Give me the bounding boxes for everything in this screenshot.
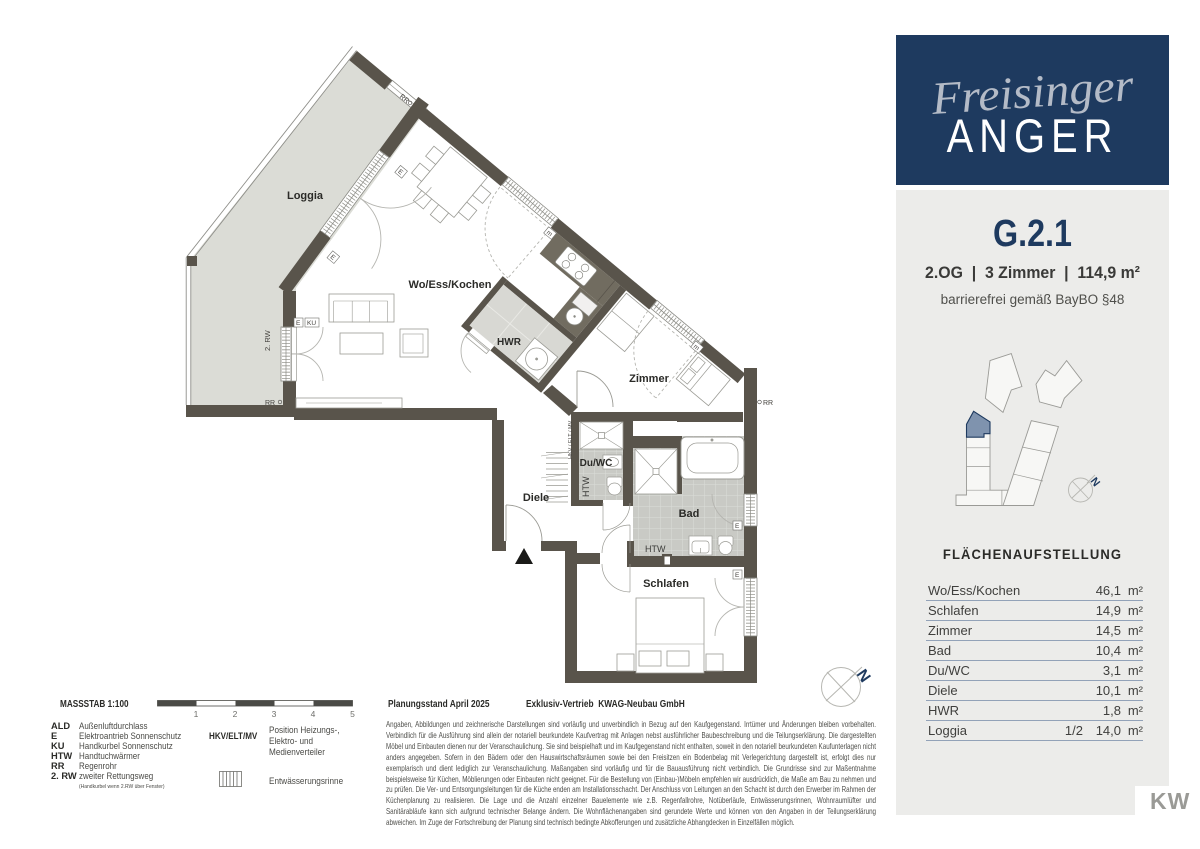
svg-text:Loggia: Loggia [287,190,324,202]
svg-text:2. RW: 2. RW [263,329,272,351]
svg-text:N: N [853,667,874,686]
svg-text:3: 3 [272,709,277,718]
svg-text:1: 1 [194,709,199,718]
svg-text:HTW: HTW [645,544,666,554]
svg-text:Diele: Diele [523,492,549,504]
svg-text:HWR: HWR [497,337,522,348]
svg-text:5: 5 [350,709,355,718]
svg-text:E: E [735,523,740,530]
svg-text:Bad: Bad [679,508,700,520]
svg-text:E: E [735,572,740,579]
svg-text:4: 4 [311,709,316,718]
svg-text:Schlafen: Schlafen [643,578,689,590]
svg-text:E: E [296,320,301,327]
svg-text:HKV / ELT / MV: HKV / ELT / MV [568,420,574,459]
svg-text:KU: KU [307,320,316,327]
svg-text:Zimmer: Zimmer [629,373,669,385]
svg-text:Wo/Ess/Kochen: Wo/Ess/Kochen [409,279,492,291]
svg-text:RR: RR [763,400,773,407]
svg-text:Du/WC: Du/WC [580,458,613,469]
svg-text:HTW: HTW [581,476,591,497]
svg-text:N: N [1088,475,1102,489]
svg-text:2: 2 [233,709,238,718]
svg-text:RR: RR [265,400,275,407]
